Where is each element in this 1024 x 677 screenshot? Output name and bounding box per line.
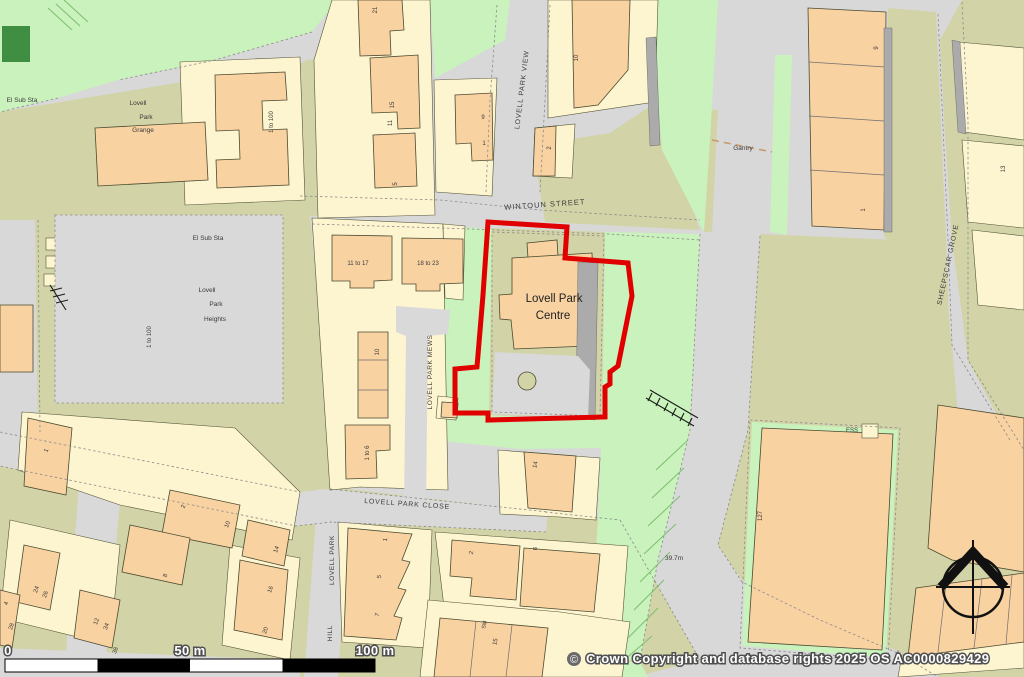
map-canvas: WINTOUN STREETLOVELL PARK VIEWLOVELL PAR…	[0, 0, 1024, 677]
place-label-heights-2: Park	[209, 301, 223, 308]
building-number: 10	[375, 348, 381, 355]
place-label-el-sub-sta-2: El Sub Sta	[193, 235, 224, 242]
building-number: 18 to 23	[417, 261, 439, 267]
copyright-notice: © Crown Copyright and database rights 20…	[567, 651, 989, 666]
scale-label-fifty: 50 m	[174, 643, 205, 658]
building-number: 11 to 17	[347, 261, 369, 267]
street-label-lovell-park-hill-2: HILL	[327, 625, 334, 641]
building-number: 11	[388, 119, 394, 126]
building-number: 13	[1001, 165, 1007, 172]
spot-height-label: 39.7m	[665, 555, 683, 562]
building-number: 10	[574, 54, 580, 61]
building-number: 127	[758, 510, 764, 521]
place-label-gantry: Gantry	[733, 145, 753, 152]
copyright-symbol: ©	[570, 654, 578, 666]
street-label-lovell-park-mews: LOVELL PARK MEWS	[427, 334, 434, 409]
building-number: 1 to 100	[269, 110, 275, 132]
building-number: 15	[390, 101, 396, 108]
place-label-heights-3: Heights	[204, 316, 227, 323]
place-label-grange-1: Lovell	[130, 100, 148, 107]
place-label-heights-1: Lovell	[199, 287, 217, 294]
building-number: 1 to 6	[365, 445, 371, 461]
place-label-grange-2: Park	[139, 114, 153, 121]
circular-planter	[518, 372, 536, 390]
scale-label-zero: 0	[4, 643, 12, 658]
building-number: 1 to 100	[147, 325, 153, 347]
scale-bar-segment	[98, 659, 191, 672]
dark-green-patch	[2, 26, 30, 62]
parking-area	[55, 215, 283, 403]
place-label-el-sub-sta-1: El Sub Sta	[7, 97, 38, 104]
scale-bar-segment	[283, 659, 376, 672]
site-building-label-line2: Centre	[536, 310, 571, 322]
building-number: 21	[373, 6, 379, 13]
scale-label-hundred: 100 m	[356, 643, 395, 658]
place-label-grange-3: Grange	[132, 127, 154, 134]
site-building-label-line1: Lovell Park	[526, 293, 583, 305]
place-label-ess: ESS	[846, 428, 858, 434]
copyright-text: Crown Copyright and database rights 2025…	[586, 651, 989, 666]
os-map: WINTOUN STREETLOVELL PARK VIEWLOVELL PAR…	[0, 0, 1024, 677]
street-label-lovell-park-hill-1: LOVELL PARK	[329, 535, 336, 585]
